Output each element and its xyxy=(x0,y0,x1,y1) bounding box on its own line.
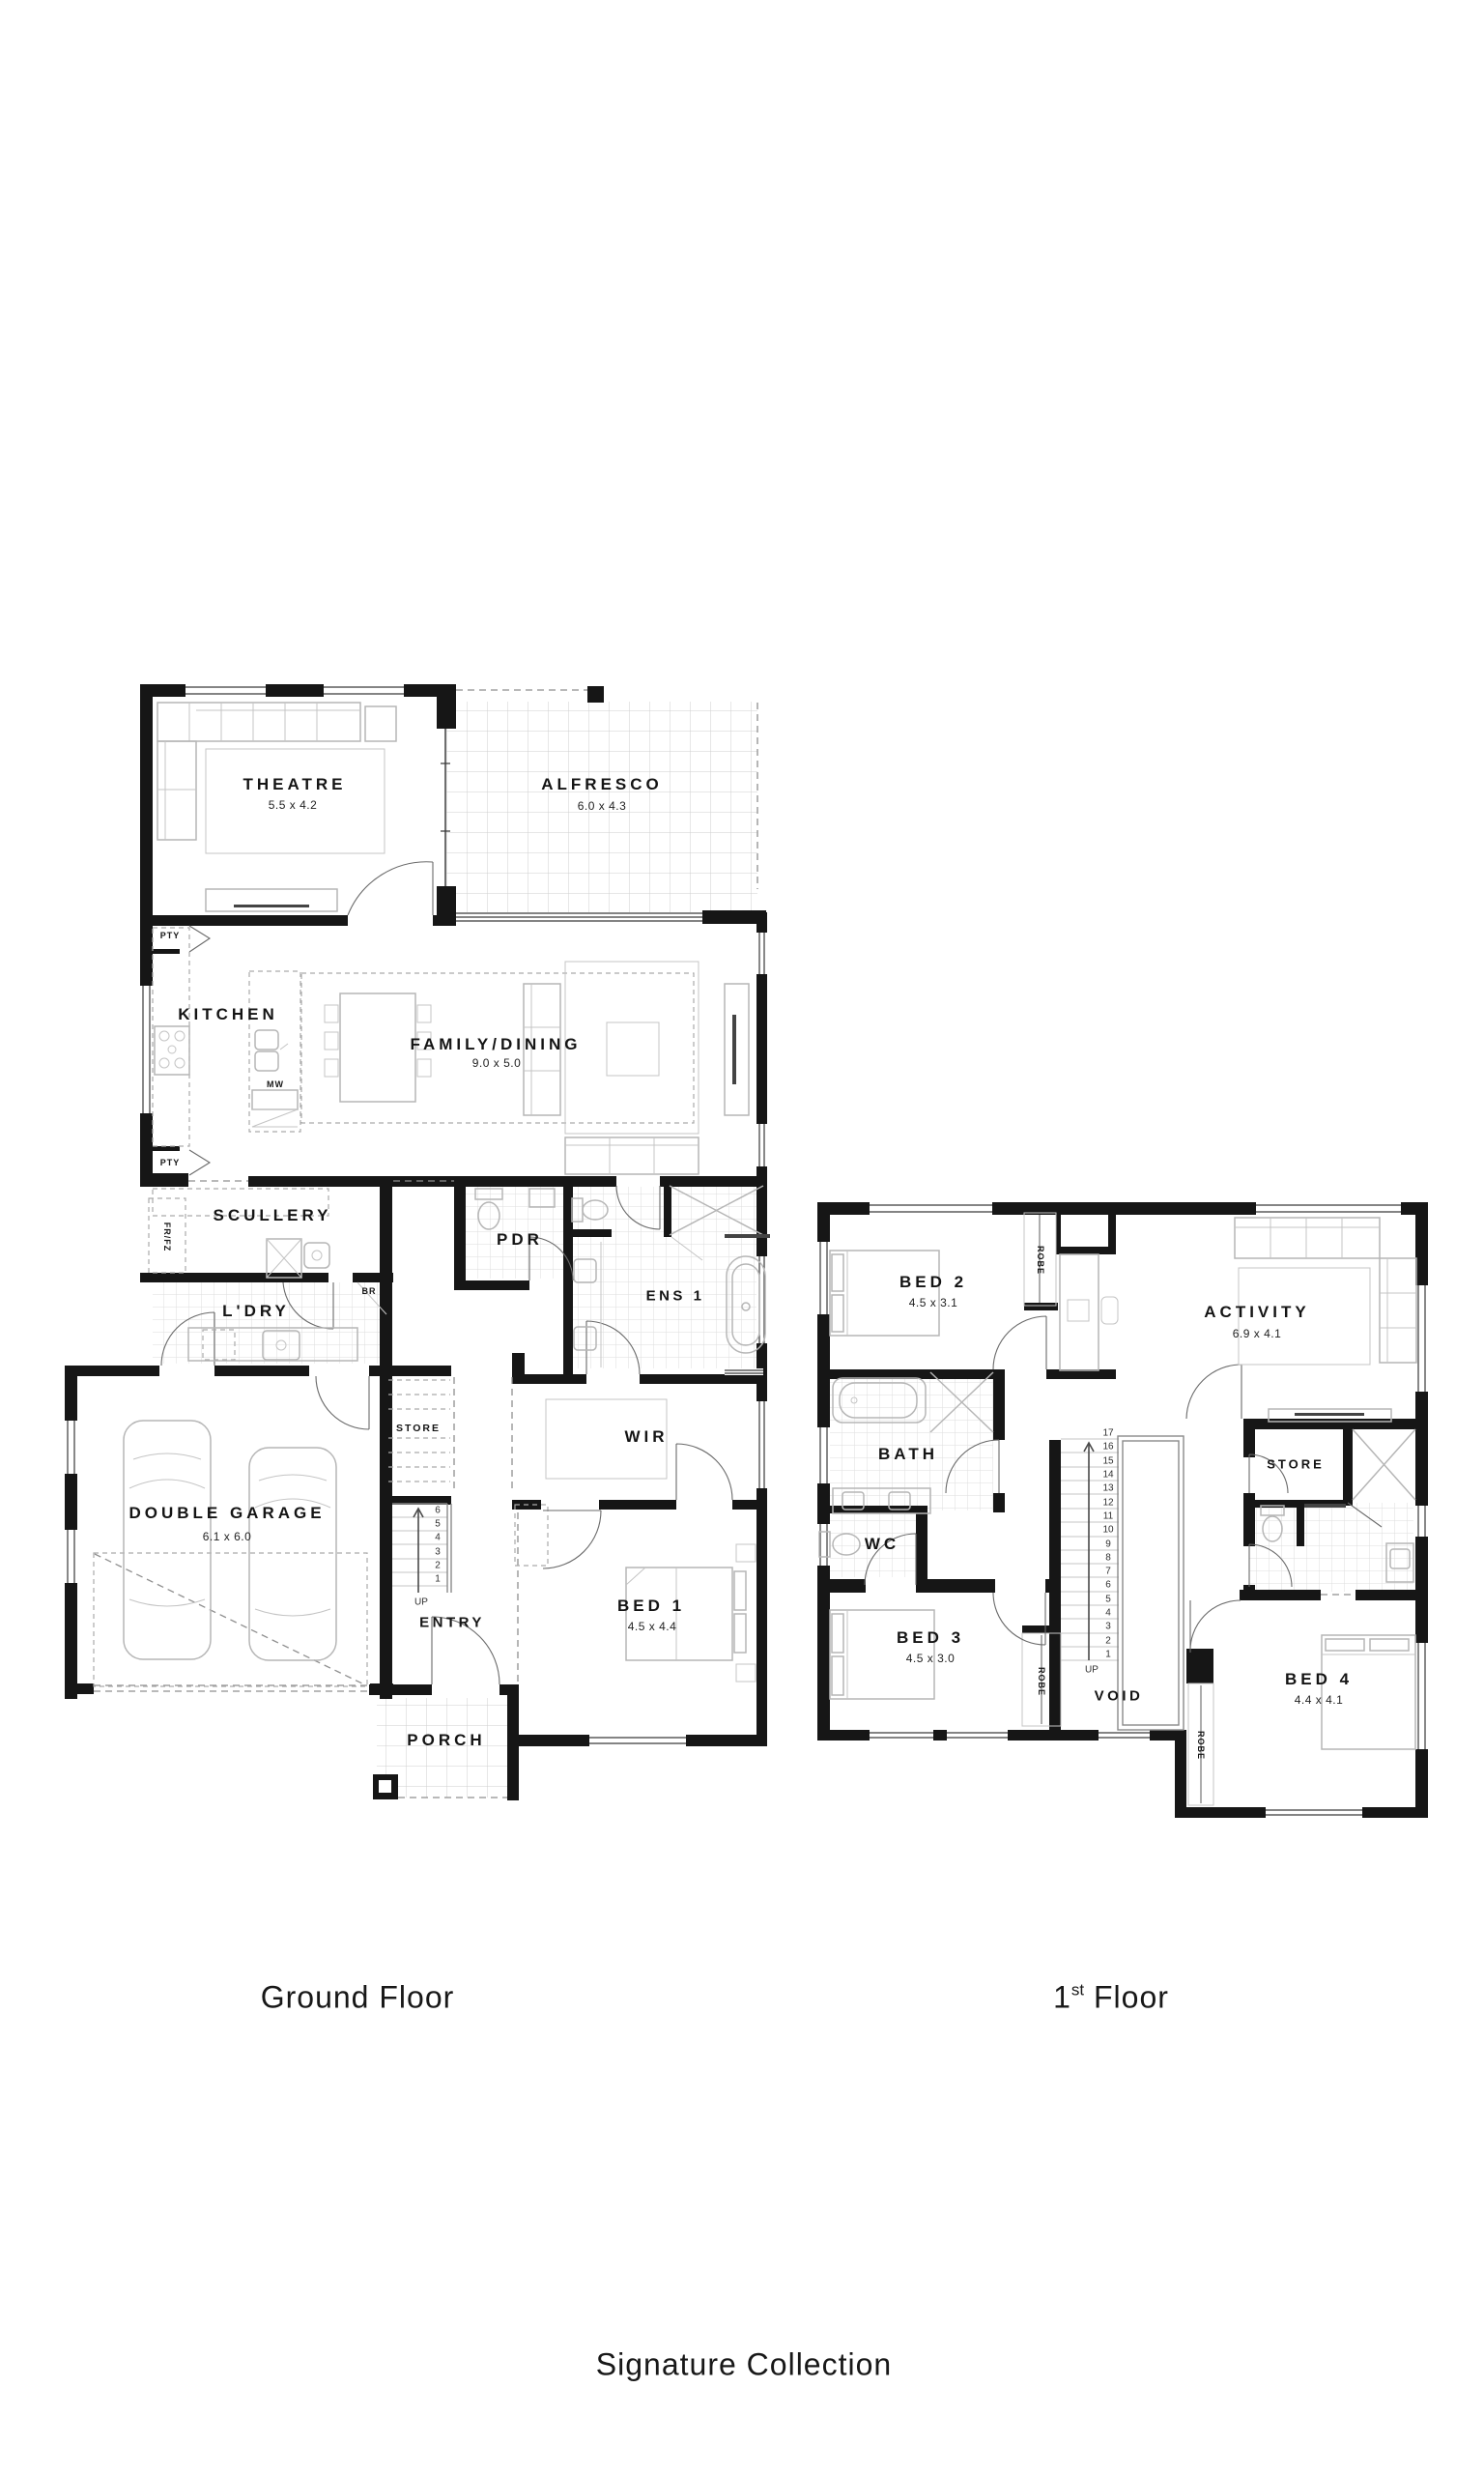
stair-number: 14 xyxy=(1102,1470,1113,1481)
collection-caption: Signature Collection xyxy=(596,2347,892,2383)
first-stairs xyxy=(1061,1436,1184,1730)
bed3-label: BED 3 xyxy=(897,1628,964,1648)
ground-stairs xyxy=(388,1380,451,1593)
bed3-dim: 4.5 x 3.0 xyxy=(906,1652,956,1665)
porch-label: PORCH xyxy=(407,1731,485,1750)
stair-number: 4 xyxy=(1105,1608,1111,1619)
bed1-dim: 4.5 x 4.4 xyxy=(628,1620,677,1633)
stair-number: 7 xyxy=(1105,1567,1111,1577)
first-floor-caption-number: 1 xyxy=(1053,1980,1071,2015)
stair-number: 10 xyxy=(1102,1525,1113,1536)
scullery-label: SCULLERY xyxy=(214,1206,332,1225)
bed4-dim: 4.4 x 4.1 xyxy=(1295,1693,1344,1707)
robe-bed2-tag: ROBE xyxy=(1036,1246,1045,1275)
stair-number: 17 xyxy=(1102,1428,1113,1439)
stair-number: 6 xyxy=(1105,1580,1111,1591)
kitchen-furniture xyxy=(153,928,300,1146)
stair-number: 3 xyxy=(1105,1622,1111,1632)
bed4-furniture xyxy=(1322,1635,1415,1749)
stair-number: 4 xyxy=(435,1533,441,1543)
ldry-label: L'DRY xyxy=(222,1302,290,1321)
bed2-dim: 4.5 x 3.1 xyxy=(909,1296,958,1309)
first-floor-plan xyxy=(817,1202,1428,1818)
stair-number: 5 xyxy=(435,1519,441,1530)
bed1-label: BED 1 xyxy=(617,1597,685,1616)
entry-label: ENTRY xyxy=(419,1615,485,1631)
activity-label: ACTIVITY xyxy=(1204,1303,1309,1322)
br-tag: BR xyxy=(362,1286,377,1296)
bed4-label: BED 4 xyxy=(1285,1670,1353,1689)
pty-bottom-tag: PTY xyxy=(160,1158,181,1167)
up-first-tag: UP xyxy=(1085,1665,1099,1676)
up-ground-tag: UP xyxy=(414,1597,428,1608)
stair-number: 5 xyxy=(1105,1595,1111,1605)
robe-bed4-tag: ROBE xyxy=(1196,1731,1206,1760)
stair-number: 8 xyxy=(1105,1553,1111,1564)
bed2-label: BED 2 xyxy=(899,1273,967,1292)
study-nook xyxy=(1060,1254,1118,1370)
pdr-label: PDR xyxy=(497,1230,543,1250)
stair-number: 11 xyxy=(1103,1511,1113,1522)
frfz-tag: FR/FZ xyxy=(162,1223,172,1252)
kitchen-label: KITCHEN xyxy=(178,1005,278,1024)
robe-bed3-tag: ROBE xyxy=(1037,1667,1046,1696)
stair-number: 6 xyxy=(435,1506,441,1516)
family-furniture xyxy=(524,962,749,1174)
theatre-label: THEATRE xyxy=(243,775,346,794)
stair-number: 16 xyxy=(1102,1442,1113,1453)
stair-number: 13 xyxy=(1102,1483,1113,1494)
wir-label: WIR xyxy=(624,1427,668,1447)
ground-dashed xyxy=(94,973,694,1798)
void-label: VOID xyxy=(1095,1688,1144,1705)
floorplan-page: THEATRE 5.5 x 4.2 ALFRESCO 6.0 x 4.3 KIT… xyxy=(0,0,1484,2474)
family-dining-dim: 9.0 x 5.0 xyxy=(472,1056,522,1070)
stair-number: 2 xyxy=(435,1561,441,1571)
stair-number: 12 xyxy=(1102,1498,1113,1509)
bath-tiles xyxy=(830,1372,993,1510)
alfresco-label: ALFRESCO xyxy=(541,775,663,794)
wc-label: WC xyxy=(865,1535,899,1554)
family-dining-label: FAMILY/DINING xyxy=(411,1035,582,1054)
garage-dim: 6.1 x 6.0 xyxy=(203,1530,252,1543)
activity-dim: 6.9 x 4.1 xyxy=(1233,1327,1282,1340)
bath-label: BATH xyxy=(878,1445,938,1464)
first-floor-caption-sup: st xyxy=(1071,1981,1084,1999)
scullery-furniture xyxy=(149,1189,329,1278)
pty-top-tag: PTY xyxy=(160,931,181,940)
stair-number: 1 xyxy=(435,1574,441,1585)
store-g-label: STORE xyxy=(396,1423,441,1434)
ens1-label: ENS 1 xyxy=(646,1288,705,1305)
stair-number: 3 xyxy=(435,1547,441,1558)
mw-tag: MW xyxy=(267,1079,284,1089)
first-floor-caption-rest: Floor xyxy=(1084,1980,1169,2015)
bed2-furniture xyxy=(830,1251,939,1336)
floorplan-drawing xyxy=(0,0,1484,2474)
stair-number: 1 xyxy=(1105,1650,1111,1660)
stair-number: 2 xyxy=(1105,1636,1111,1647)
first-floor-caption: 1st Floor xyxy=(1053,1980,1169,2016)
alfresco-dim: 6.0 x 4.3 xyxy=(578,799,627,813)
stair-number: 9 xyxy=(1105,1539,1111,1550)
stair-number: 15 xyxy=(1102,1456,1113,1467)
ground-floor-caption: Ground Floor xyxy=(261,1980,455,2016)
store-1f-label: STORE xyxy=(1267,1457,1325,1472)
ldry-tiles xyxy=(153,1282,380,1364)
garage-label: DOUBLE GARAGE xyxy=(128,1504,325,1523)
theatre-dim: 5.5 x 4.2 xyxy=(269,798,318,812)
